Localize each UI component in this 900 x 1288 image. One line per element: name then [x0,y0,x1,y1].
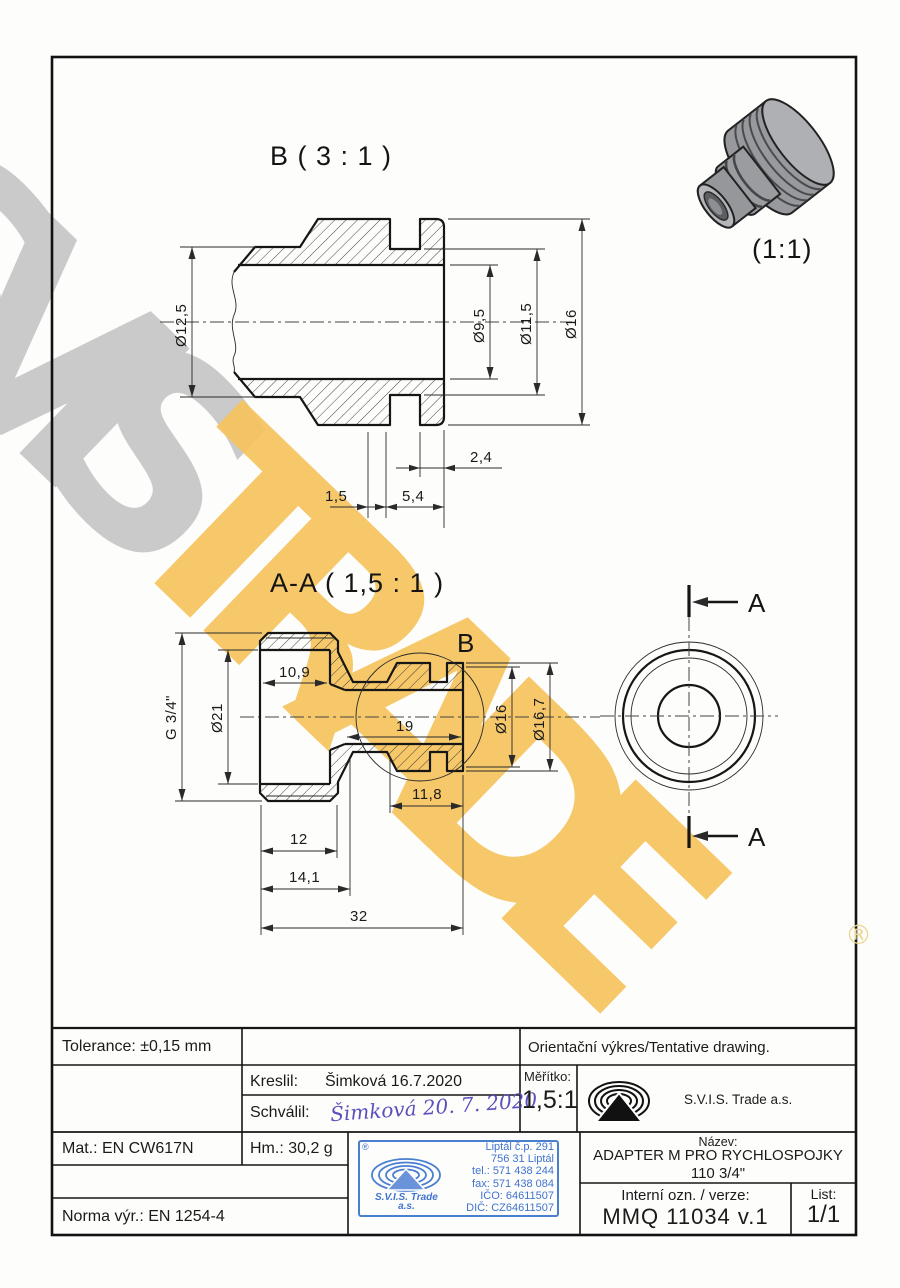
iso-scale-label: (1:1) [752,234,813,264]
dim-label-1-5: 1,5 [325,488,347,505]
dim-label-d9-5: Ø9,5 [471,308,488,343]
side-view: A A [600,585,778,852]
dim-label-5-4: 5,4 [402,488,424,505]
stamp-line: IČO: 64611507 [440,1190,554,1202]
dim-label-d12-5: Ø12,5 [173,304,190,347]
part-name-line2: 110 3/4" [580,1165,856,1182]
stamp-line: fax: 571 438 084 [440,1178,554,1190]
detail-b-marker: B [457,628,474,658]
tolerance-note: Tolerance: ±0,15 mm [62,1038,211,1056]
dimension-lines [182,633,550,928]
drawing-sheet: SVISTRADE ® [0,0,900,1288]
weight-value: Hm.: 30,2 g [250,1140,333,1158]
material-value: Mat.: EN CW617N [62,1140,194,1158]
dim-label-d16-7: Ø16,7 [531,698,548,741]
dim-label-10-9: 10,9 [279,664,310,681]
view-label-b: B ( 3 : 1 ) [270,141,392,171]
dim-label-d11-5: Ø11,5 [518,303,535,345]
dim-label-d16: Ø16 [493,704,510,734]
orientation-note: Orientační výkres/Tentative drawing. [528,1039,770,1056]
dim-label-2-4: 2,4 [470,449,492,466]
part-name-line1: ADAPTER M PRO RYCHLOSPOJKY [580,1147,856,1164]
stamp-line: Liptál č.p. 291 [440,1141,554,1153]
section-label-a-top: A [748,588,766,618]
dim-label-32: 32 [350,908,368,925]
internal-id-label: Interní ozn. / verze: [580,1187,791,1204]
dim-label-11-8: 11,8 [412,786,442,803]
scale-value: 1,5:1 [522,1086,578,1115]
extension-lines [175,633,558,935]
drawn-by-label: Kreslil: [250,1073,298,1091]
stamp-address: Liptál č.p. 291 756 31 Liptál tel.: 571 … [440,1141,554,1214]
dim-label-12: 12 [290,831,308,848]
stamp-registered-icon: ® [362,1142,369,1152]
sheet-frame [52,57,856,1235]
iso-part [675,89,845,254]
norm-value: Norma výr.: EN 1254-4 [62,1208,225,1226]
company-logo-icon [589,1082,649,1122]
drawn-by-value: Šimková 16.7.2020 [325,1073,462,1091]
section-label-a-bottom: A [748,822,766,852]
dim-label-d21: Ø21 [209,703,226,733]
section-arrows [692,597,738,841]
stamp-line: tel.: 571 438 244 [440,1165,554,1177]
registered-trademark-icon: ® [845,920,872,951]
company-name: S.V.I.S. Trade a.s. [684,1092,792,1107]
stamp-line: DIČ: CZ64611507 [440,1202,554,1214]
stamp-company-name: S.V.I.S. Trade a.s. [375,1193,438,1211]
sheet-label: List: [791,1186,856,1202]
detail-b-view: B ( 3 : 1 ) Ø12,5 Ø9,5 Ø11,5 Ø16 2,4 1,5… [160,141,590,528]
sheet-value: 1/1 [791,1201,856,1229]
approved-by-label: Schválil: [250,1104,310,1122]
dim-label-d16: Ø16 [563,309,580,339]
section-aa-view: A-A ( 1,5 : 1 ) B G 3/4" Ø21 10,9 19 Ø16… [163,568,600,935]
dim-label-g34: G 3/4" [163,695,180,740]
dim-label-14-1: 14,1 [289,869,320,886]
internal-id-value: MMQ 11034 v.1 [580,1204,791,1230]
iso-view: (1:1) [675,89,845,264]
stamp-line: 756 31 Liptál [440,1153,554,1165]
dim-label-19: 19 [396,718,414,735]
view-label-aa: A-A ( 1,5 : 1 ) [270,568,444,598]
scale-label: Měřítko: [524,1069,571,1084]
